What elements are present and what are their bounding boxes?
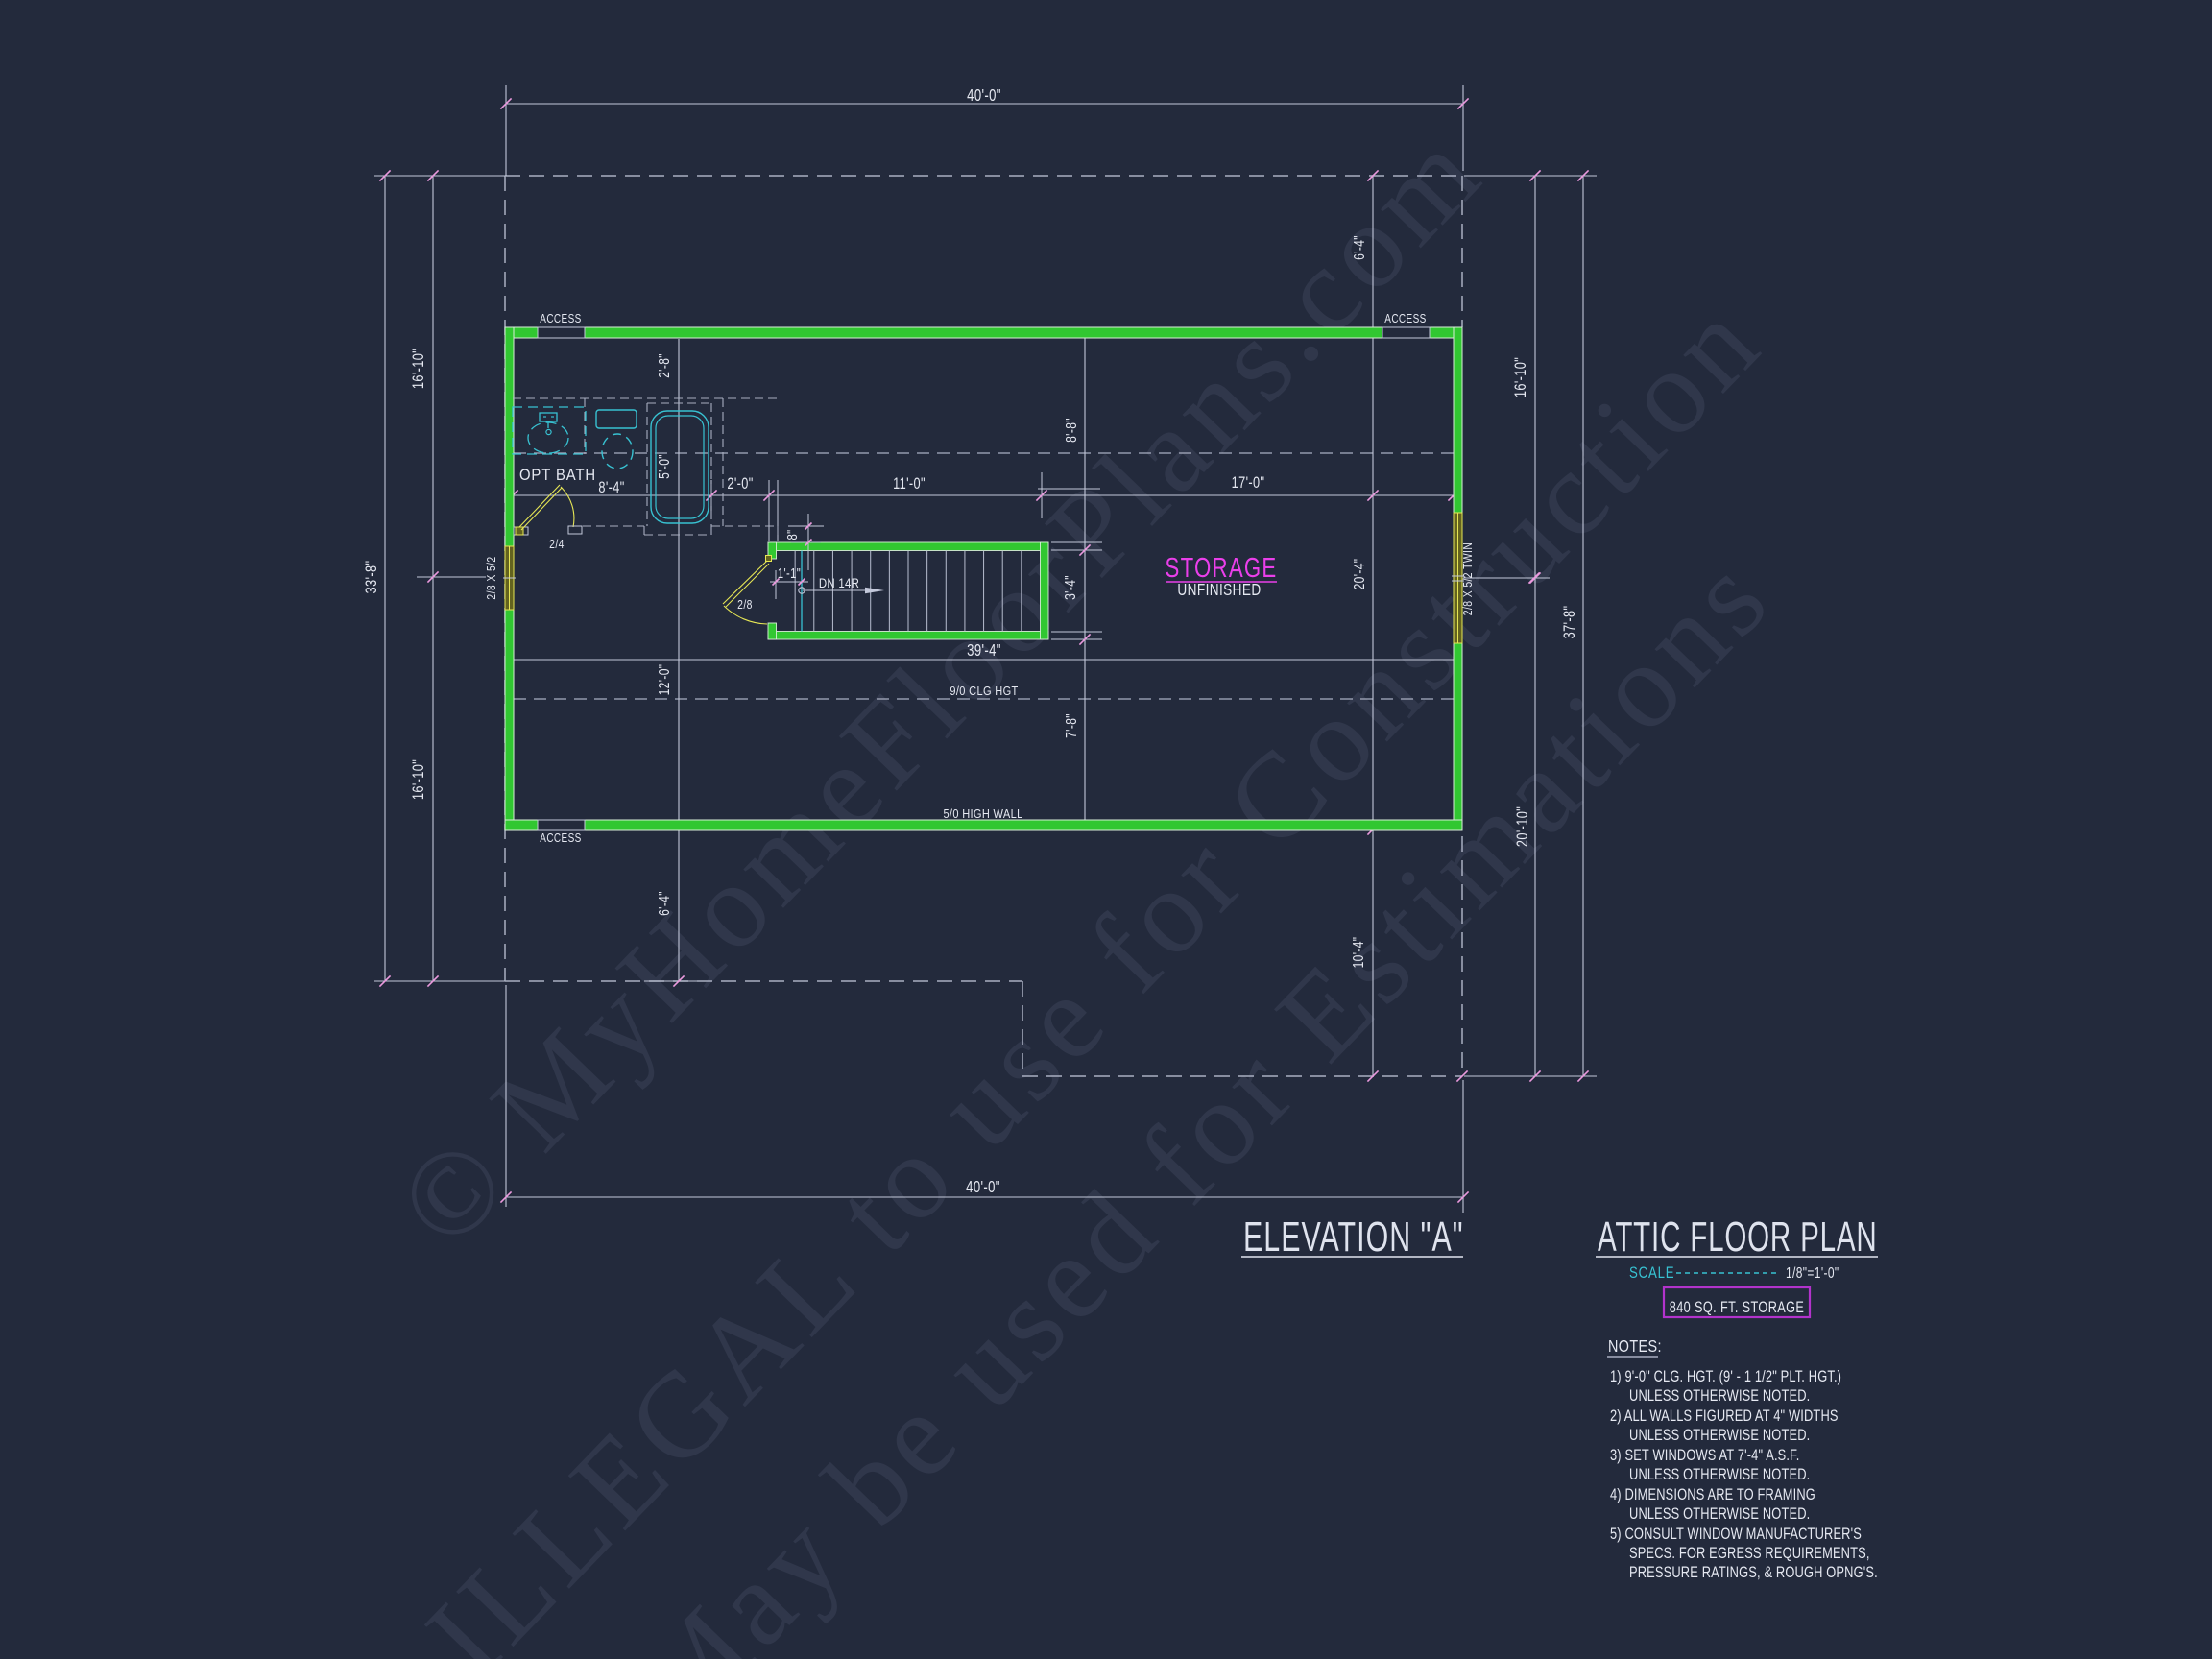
svg-text:1) 9'-0" CLG. HGT. (9' - 1 1/: 1) 9'-0" CLG. HGT. (9' - 1 1/2" PLT. HGT…	[1610, 1369, 1841, 1386]
svg-text:2) ALL WALLS FIGURED AT 4" WI: 2) ALL WALLS FIGURED AT 4" WIDTHS	[1610, 1408, 1839, 1426]
svg-text:6'-4": 6'-4"	[1350, 235, 1367, 260]
svg-text:2/4: 2/4	[549, 538, 565, 551]
svg-text:UNLESS OTHERWISE NOTED.: UNLESS OTHERWISE NOTED.	[1629, 1506, 1810, 1524]
svg-text:11'-0": 11'-0"	[893, 474, 926, 493]
svg-text:8": 8"	[783, 529, 800, 540]
svg-text:UNLESS OTHERWISE NOTED.: UNLESS OTHERWISE NOTED.	[1629, 1428, 1810, 1445]
svg-text:10'-4": 10'-4"	[1349, 937, 1366, 969]
svg-text:3'-4": 3'-4"	[1061, 575, 1078, 600]
svg-text:16'-10": 16'-10"	[1511, 357, 1529, 397]
svg-text:1/8"=1'-0": 1/8"=1'-0"	[1786, 1263, 1839, 1281]
svg-text:2'-8": 2'-8"	[655, 353, 672, 378]
svg-text:5/0 HIGH WALL: 5/0 HIGH WALL	[943, 806, 1022, 821]
svg-text:ACCESS: ACCESS	[540, 313, 581, 325]
svg-text:PRESSURE RATINGS, & ROUGH OPNG: PRESSURE RATINGS, & ROUGH OPNG'S.	[1629, 1565, 1878, 1582]
svg-text:20'-4": 20'-4"	[1350, 559, 1367, 590]
svg-text:SCALE: SCALE	[1629, 1264, 1674, 1283]
svg-text:3) SET WINDOWS AT 7'-4" A.S.F.: 3) SET WINDOWS AT 7'-4" A.S.F.	[1610, 1448, 1799, 1465]
svg-text:40'-0": 40'-0"	[967, 86, 1001, 105]
svg-text:4) DIMENSIONS ARE TO FRAMING: 4) DIMENSIONS ARE TO FRAMING	[1610, 1487, 1815, 1504]
svg-text:2/8 X 5/2 TWIN: 2/8 X 5/2 TWIN	[1461, 542, 1475, 615]
svg-text:12'-0": 12'-0"	[655, 664, 672, 696]
svg-text:2'-0": 2'-0"	[727, 474, 753, 493]
svg-text:UNLESS OTHERWISE NOTED.: UNLESS OTHERWISE NOTED.	[1629, 1467, 1810, 1484]
svg-text:20'-10": 20'-10"	[1513, 806, 1531, 847]
svg-text:17'-0": 17'-0"	[1232, 473, 1265, 492]
svg-text:16'-10": 16'-10"	[409, 759, 427, 800]
svg-text:5'-0": 5'-0"	[655, 454, 672, 479]
svg-text:UNLESS OTHERWISE NOTED.: UNLESS OTHERWISE NOTED.	[1629, 1388, 1810, 1406]
svg-text:7'-8": 7'-8"	[1062, 713, 1079, 738]
svg-text:1'-1": 1'-1"	[778, 565, 801, 581]
svg-text:SPECS. FOR EGRESS REQUIREMENTS: SPECS. FOR EGRESS REQUIREMENTS,	[1629, 1546, 1870, 1563]
svg-text:16'-10": 16'-10"	[409, 349, 427, 389]
svg-text:2/8: 2/8	[737, 598, 753, 612]
svg-text:840 SQ. FT. STORAGE: 840 SQ. FT. STORAGE	[1670, 1300, 1804, 1317]
svg-text:OPT BATH: OPT BATH	[519, 467, 596, 484]
svg-text:9/0 CLG HGT: 9/0 CLG HGT	[950, 684, 1018, 698]
svg-text:8'-4": 8'-4"	[598, 478, 624, 496]
svg-text:5) CONSULT WINDOW MANUFACTURER: 5) CONSULT WINDOW MANUFACTURER'S	[1610, 1527, 1862, 1544]
svg-text:ACCESS: ACCESS	[1384, 313, 1426, 325]
svg-text:39'-4": 39'-4"	[967, 641, 1001, 660]
svg-text:8'-8": 8'-8"	[1062, 418, 1079, 443]
svg-text:STORAGE: STORAGE	[1166, 553, 1278, 583]
svg-text:6'-4": 6'-4"	[655, 891, 672, 916]
svg-text:2/8 X 5/2: 2/8 X 5/2	[485, 556, 498, 599]
svg-text:ELEVATION "A": ELEVATION "A"	[1243, 1214, 1464, 1262]
svg-text:NOTES:: NOTES:	[1608, 1337, 1662, 1357]
svg-text:DN 14R: DN 14R	[819, 576, 859, 590]
svg-text:33'-8": 33'-8"	[362, 561, 380, 594]
svg-text:ATTIC FLOOR PLAN: ATTIC FLOOR PLAN	[1598, 1213, 1878, 1260]
svg-text:40'-0": 40'-0"	[966, 1178, 1000, 1196]
svg-text:37'-8": 37'-8"	[1560, 606, 1578, 639]
svg-text:ACCESS: ACCESS	[540, 832, 581, 845]
svg-text:UNFINISHED: UNFINISHED	[1177, 582, 1261, 600]
